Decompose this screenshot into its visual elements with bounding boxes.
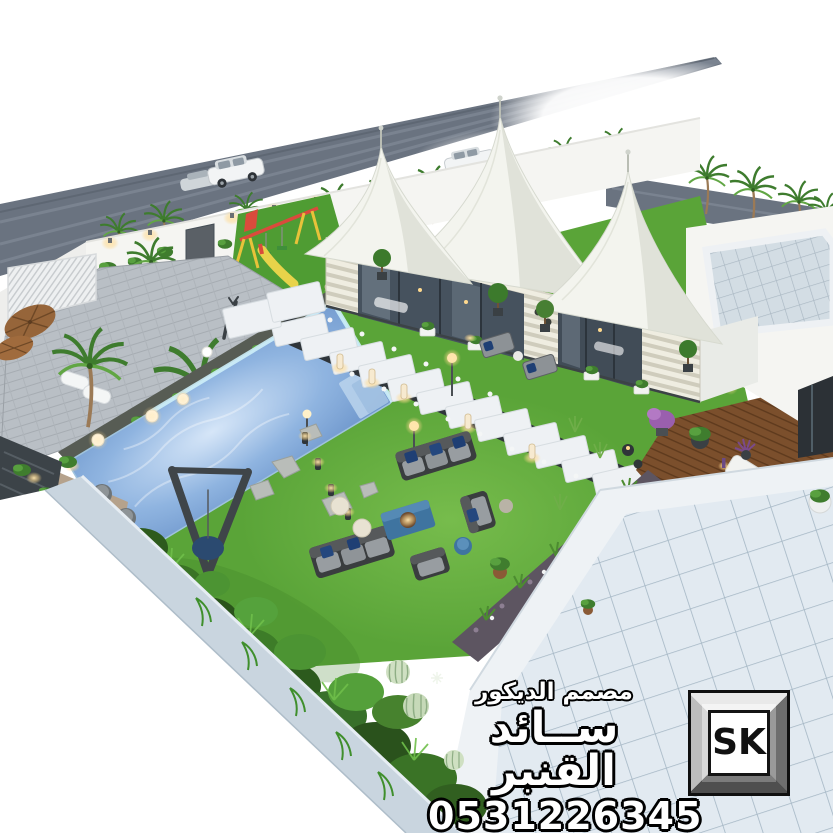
watermark: مصمم الديكور ســائد القنبر 0531226345 SK xyxy=(428,680,800,810)
stone-stool xyxy=(499,499,513,513)
watermark-text-block: مصمم الديكور ســائد القنبر 0531226345 xyxy=(428,680,680,833)
sk-logo-frame: SK xyxy=(691,693,787,793)
architectural-render: مصمم الديكور ســائد القنبر 0531226345 SK xyxy=(0,0,833,833)
phone-number: 0531226345 xyxy=(428,797,680,833)
pavilion-tiled-roof xyxy=(706,232,833,334)
designer-name: ســائد القنبر xyxy=(428,707,680,793)
designer-title: مصمم الديكور xyxy=(428,680,680,705)
sk-logo: SK xyxy=(688,690,790,796)
sk-logo-text: SK xyxy=(712,722,766,763)
pavilion-glass-door xyxy=(798,376,833,458)
